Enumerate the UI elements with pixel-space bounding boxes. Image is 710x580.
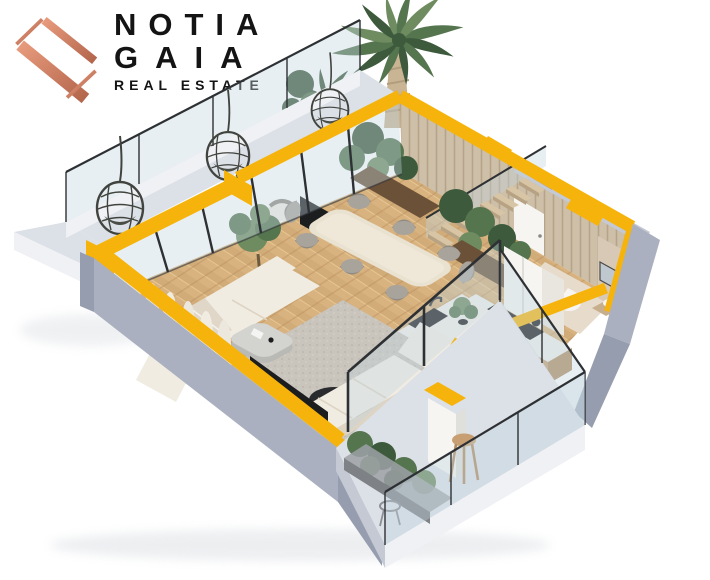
- door-handle: [538, 234, 542, 238]
- page: { "brand": { "line1": "NOTIA", "line2": …: [0, 0, 710, 580]
- floorplan-render: [0, 0, 710, 580]
